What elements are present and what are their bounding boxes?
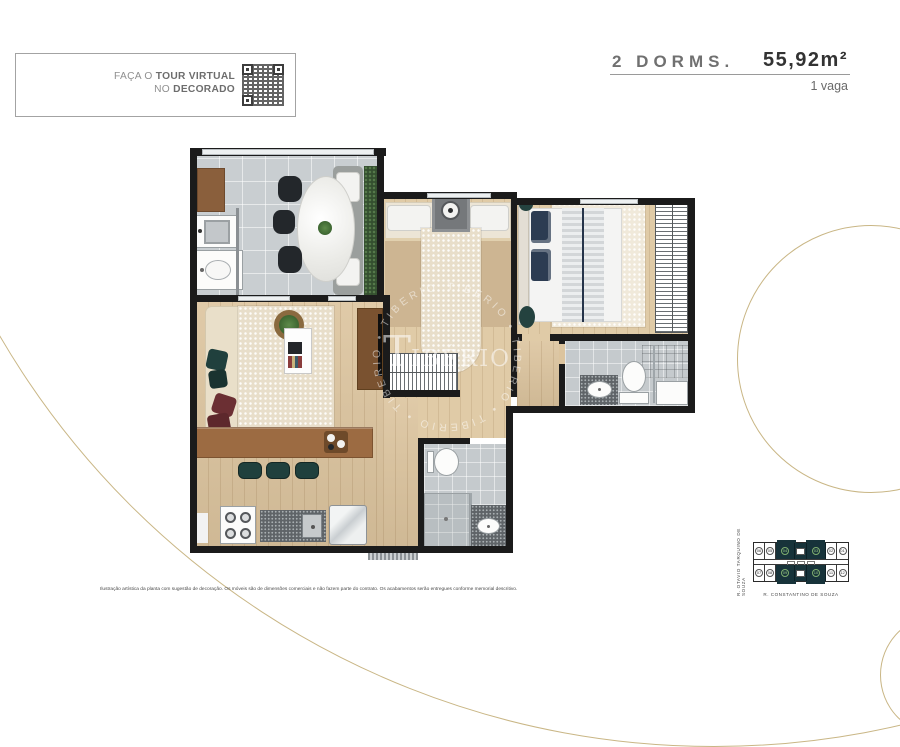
- wall: [688, 198, 695, 413]
- unit-cell: 12: [837, 565, 848, 581]
- unit-cell: 11: [826, 565, 837, 581]
- watermark-logo: TIBÉRIO: [378, 332, 516, 381]
- unit-cell: 01: [837, 543, 848, 559]
- dining-chair: [278, 176, 302, 202]
- tour-line1: FAÇA O TOUR VIRTUAL: [65, 70, 235, 83]
- unit-type-label: 2 DORMS.: [612, 52, 734, 72]
- unit-cell: 05: [765, 543, 776, 559]
- master-wardrobe: [655, 202, 688, 333]
- bathroom2-sink: [477, 518, 500, 534]
- coffee-table-books: [288, 342, 302, 354]
- keyplan-building: 06 05 04 03 02 01 07 08 09 10 11 12: [753, 542, 849, 582]
- table-lamp-center: [448, 208, 453, 213]
- dining-chair: [278, 246, 302, 273]
- wall: [190, 546, 513, 553]
- tour-line2: NO DECORADO: [65, 83, 235, 96]
- qr-finder: [242, 95, 253, 106]
- sofa-cushion-teal: [205, 348, 229, 372]
- coffee-set: [324, 431, 348, 453]
- shower-tiled-wall: [642, 345, 688, 378]
- watermark-logo-rest: IBÉRIO: [411, 346, 511, 372]
- keyplan-bump: [777, 581, 796, 584]
- bathroom1-sink: [587, 381, 612, 398]
- dining-chair: [273, 210, 295, 234]
- sofa-cushion-teal: [208, 369, 228, 389]
- washing-machine: [195, 215, 237, 248]
- parking-label: 1 vaga: [810, 79, 848, 93]
- disclaimer-text: Ilustração artística da planta com suges…: [100, 586, 800, 595]
- floorplan: TIBERIO • TIBERIO • TIBERIO • TIBERIO • …: [190, 148, 702, 563]
- bar-stool: [295, 462, 319, 479]
- wall: [190, 148, 197, 553]
- entry-doormat: [368, 553, 418, 560]
- service-partition-wall: [236, 208, 239, 296]
- toilet-bowl: [622, 361, 646, 392]
- bedroom2-window: [427, 193, 491, 198]
- unit-cell-highlighted: 04: [776, 543, 795, 559]
- shower-area: [424, 493, 470, 547]
- bar-stool: [238, 462, 262, 479]
- keyplan-bump: [806, 581, 825, 584]
- flyer-page: { "page": { "bg": "#ffffff", "accent_gol…: [0, 0, 900, 643]
- keyplan-row-top: 06 05 04 03 02 01: [754, 543, 848, 559]
- elevator-core: [795, 565, 807, 581]
- header-rule: [610, 74, 850, 75]
- unit-cell: 08: [765, 565, 776, 581]
- qr-finder: [273, 64, 284, 75]
- master-duvet-stripe: [582, 208, 584, 322]
- unit-cell-highlighted: 09: [776, 565, 795, 581]
- qr-finder: [242, 64, 253, 75]
- terrace-window: [202, 149, 374, 155]
- unit-cell-highlighted: 10: [807, 565, 826, 581]
- terrace-sliding-door: [238, 296, 290, 301]
- coffee-table-books: [288, 356, 302, 368]
- unit-cell-highlighted: 03: [807, 543, 826, 559]
- navy-pillow: [531, 211, 551, 243]
- bathroom1-door-opening: [559, 344, 565, 364]
- tour-text: FAÇA O TOUR VIRTUAL NO DECORADO: [65, 70, 235, 96]
- terrace-cabinet: [197, 168, 225, 212]
- street-label-bottom: R. CONSTANTINO DE SOUZA: [748, 592, 854, 597]
- kitchen-door-leaf: [197, 513, 208, 543]
- elevator-core: [795, 543, 807, 559]
- toilet-tank: [619, 392, 649, 404]
- cooktop-stove: [220, 506, 256, 544]
- qr-code-icon: [240, 62, 286, 108]
- refrigerator: [329, 505, 367, 545]
- keyplan-row-bottom: 07 08 09 10 11 12: [754, 565, 848, 581]
- tour-box: FAÇA O TOUR VIRTUAL NO DECORADO: [15, 53, 296, 117]
- table-plant: [318, 221, 332, 235]
- street-label-left: R. OTAVIO TARQUINO DE SOUZA: [736, 518, 746, 596]
- master-window: [580, 199, 638, 204]
- unit-area-label: 55,92m²: [763, 49, 848, 72]
- unit-cell: 02: [826, 543, 837, 559]
- kitchen-sink: [302, 514, 322, 538]
- watermark-logo-initial: T: [383, 327, 411, 376]
- bar-stool: [266, 462, 290, 479]
- shower-tray: [656, 381, 688, 405]
- unit-cell: 07: [754, 565, 765, 581]
- shower-glass: [653, 345, 655, 403]
- unit-cell: 06: [754, 543, 765, 559]
